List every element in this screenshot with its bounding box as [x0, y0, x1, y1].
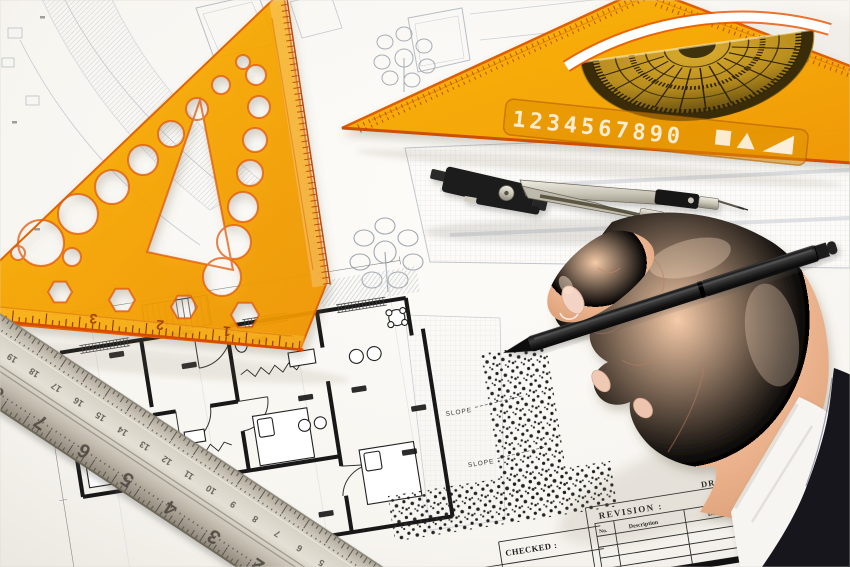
photo-canvas: SLOPE SLOPE REVISION : No. Description D… — [0, 0, 850, 567]
photo-architect-drawing-scene: SLOPE SLOPE REVISION : No. Description D… — [0, 0, 850, 567]
